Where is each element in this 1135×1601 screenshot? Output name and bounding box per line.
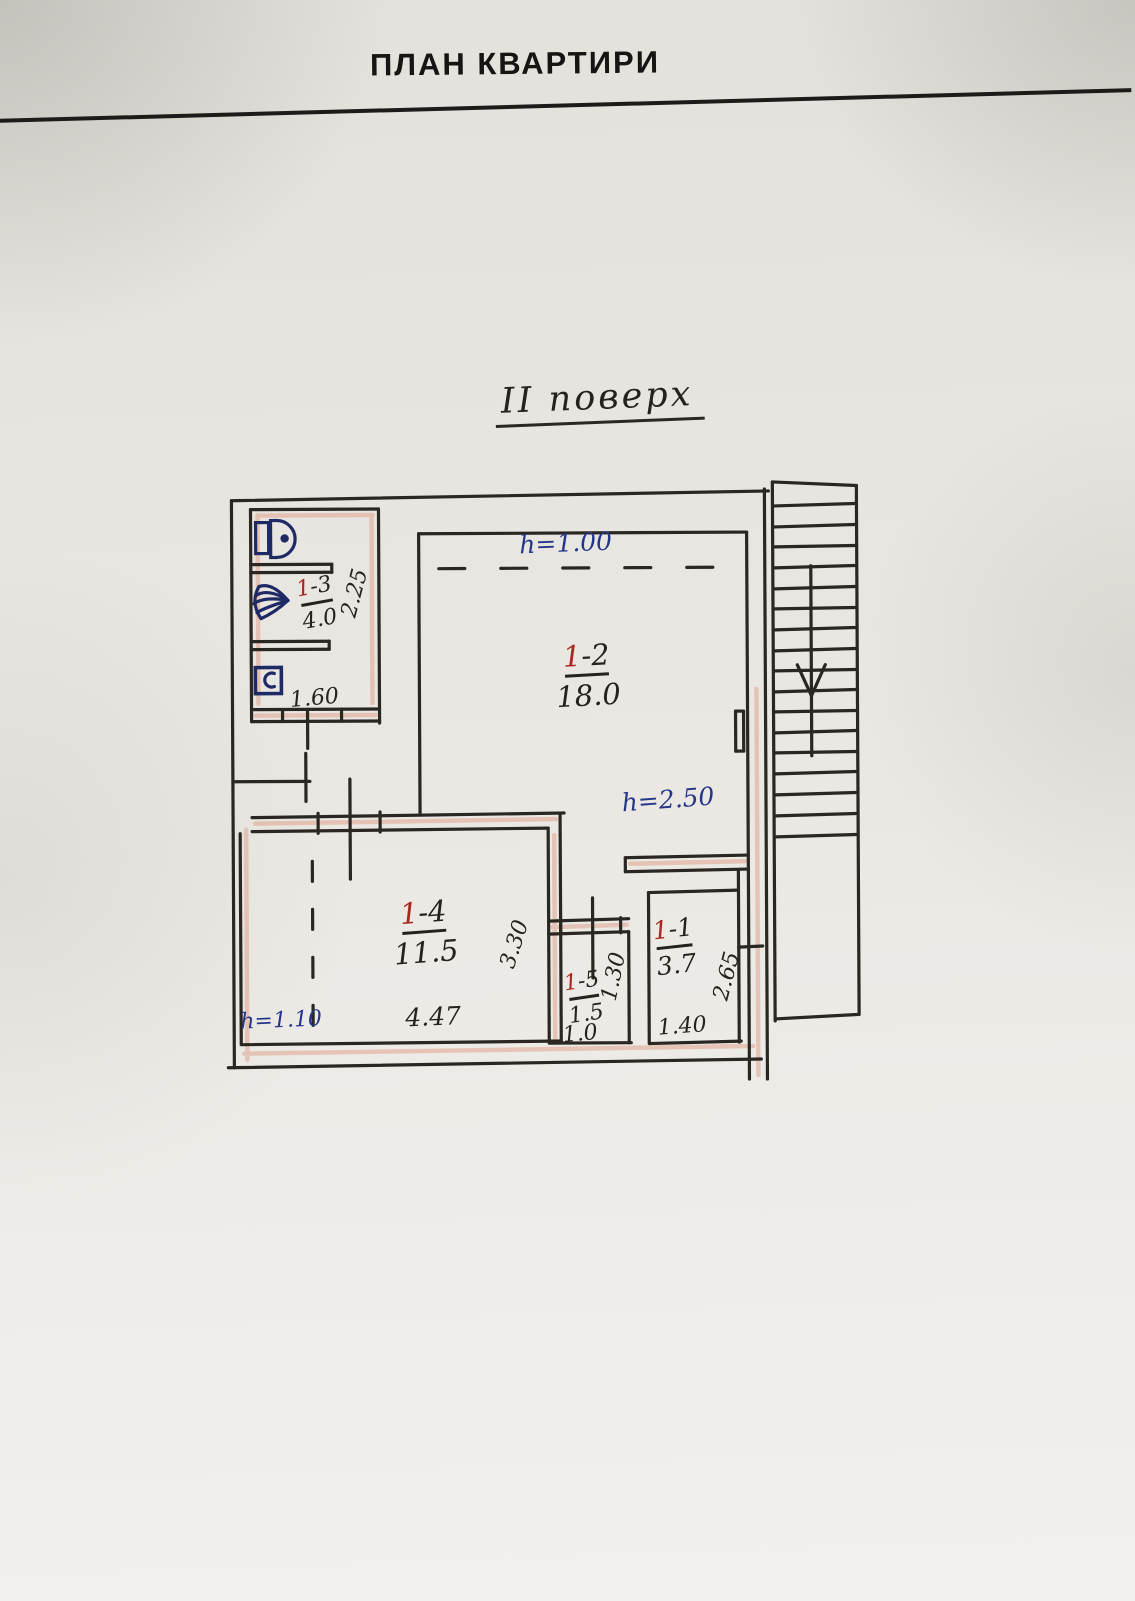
stairs-down-arrow bbox=[797, 566, 826, 756]
wall-outer-top bbox=[231, 491, 768, 501]
staircase bbox=[772, 481, 859, 1020]
dim-room-1-4-width: 4.47 bbox=[405, 1001, 462, 1032]
floor-label: ІІ поверх bbox=[494, 374, 704, 428]
wall-outer-left bbox=[231, 501, 234, 1068]
room-1-1-area: 3.7 bbox=[655, 950, 698, 981]
height-note-room-1-2: h=1.00 bbox=[519, 527, 613, 560]
wall-outer-bottom bbox=[228, 1059, 761, 1068]
header-rule bbox=[0, 90, 1135, 121]
dimension-cross bbox=[350, 779, 351, 879]
room-1-2-label: 1-2 18.0 bbox=[553, 639, 622, 713]
height-note-room-1-4: h=1.10 bbox=[240, 1006, 323, 1034]
wall-right-inner bbox=[747, 532, 750, 1079]
plan-area: ІІ поверх h=1.00 h=2.50 h=1.10 1-3 4.0 1… bbox=[0, 0, 1135, 1601]
wall-right-outer bbox=[764, 489, 767, 1079]
room-1-4-area: 11.5 bbox=[393, 935, 460, 970]
scanned-floor-plan-page: ПЛАН КВАРТИРИ bbox=[0, 0, 1135, 1601]
room-1-4-label: 1-4 11.5 bbox=[390, 895, 460, 971]
room-1-2-area: 18.0 bbox=[555, 679, 621, 713]
dim-bathroom-width: 1.60 bbox=[289, 684, 340, 713]
dim-room-1-1-width: 1.40 bbox=[657, 1012, 708, 1041]
floor-plan-drawing bbox=[0, 0, 1135, 1601]
walls bbox=[225, 481, 859, 1081]
toilet-icon bbox=[256, 520, 296, 557]
dim-room-1-5-width: 1.0 bbox=[562, 1020, 599, 1048]
dashed-partition bbox=[439, 567, 725, 568]
room-1-1-label: 1-1 3.7 bbox=[651, 914, 698, 981]
